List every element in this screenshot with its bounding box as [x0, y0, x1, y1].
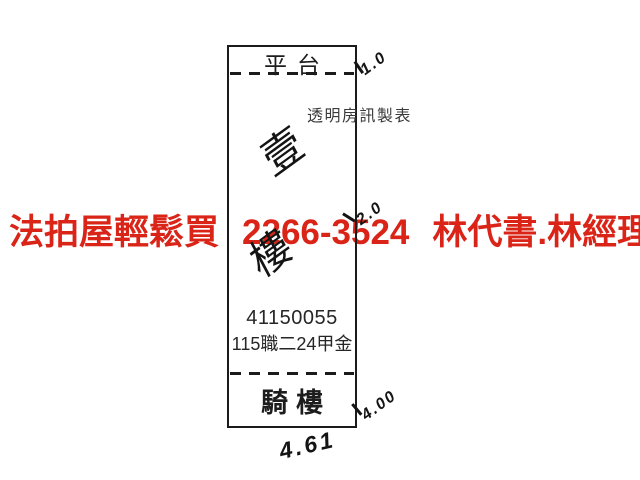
ad-overlay: 法拍屋輕鬆買 2266-3524 林代書.林經理	[9, 214, 640, 252]
dimension-top-right: 1.0	[358, 49, 390, 79]
scanned-floor-plan-page: 平台 騎樓 41150055 115職二24甲金 透明房訊製表 壹 樓 1.0 …	[0, 0, 640, 480]
dimension-bottom-width: 4.61	[277, 428, 337, 463]
lot-number-label: 115職二24甲金	[227, 330, 357, 356]
arcade-label: 騎樓	[229, 381, 355, 420]
platform-label: 平台	[229, 46, 355, 80]
registration-number: 41150055	[227, 307, 357, 330]
watermark-text: 透明房訊製表	[307, 102, 412, 126]
dimension-bottom-right: 4.00	[359, 388, 400, 424]
arcade-divider-dashed-line	[230, 372, 354, 375]
ad-contact-names: 林代書.林經理	[432, 214, 640, 252]
ad-phone-number: 2266-3524	[242, 214, 409, 252]
ad-slogan: 法拍屋輕鬆買	[9, 214, 219, 252]
